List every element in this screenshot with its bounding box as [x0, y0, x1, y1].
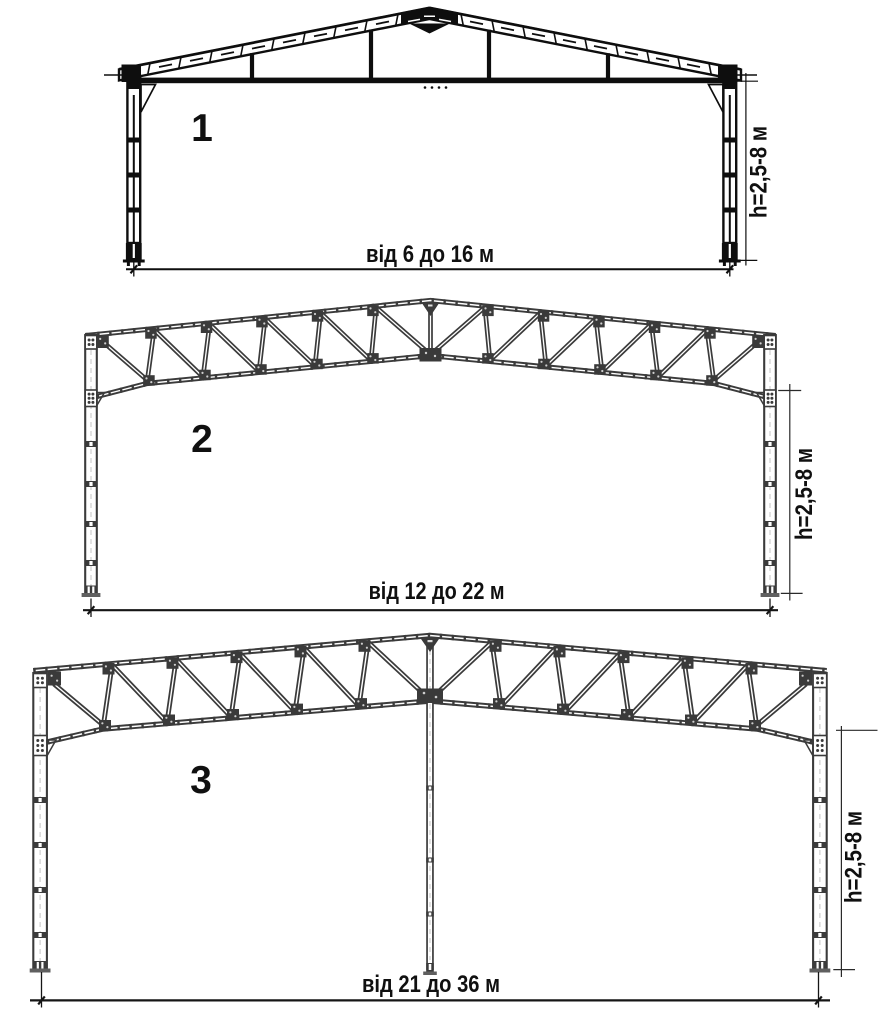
svg-text:2: 2 — [191, 418, 213, 461]
svg-text:від 12 до 22 м: від 12 до 22 м — [369, 578, 505, 605]
svg-text:h=2,5-8 м: h=2,5-8 м — [791, 448, 818, 540]
svg-text:1: 1 — [191, 107, 213, 150]
svg-text:3: 3 — [190, 759, 212, 802]
svg-text:від 6 до 16 м: від 6 до 16 м — [366, 241, 494, 268]
svg-text:від 21 до 36 м: від 21 до 36 м — [362, 971, 500, 998]
svg-text:h=2,5-8 м: h=2,5-8 м — [841, 811, 868, 903]
svg-text:h=2,5-8 м: h=2,5-8 м — [746, 126, 773, 218]
